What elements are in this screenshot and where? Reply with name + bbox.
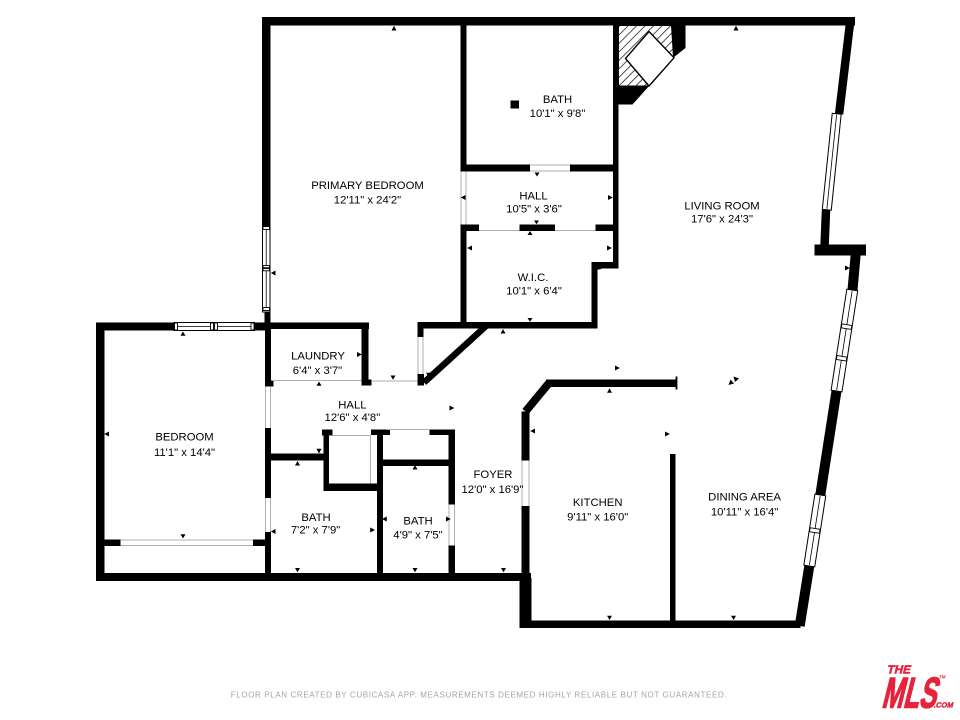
svg-text:MLS: MLS bbox=[879, 668, 946, 717]
svg-text:7'2" x 7'9": 7'2" x 7'9" bbox=[291, 525, 340, 537]
svg-text:9'11" x 16'0": 9'11" x 16'0" bbox=[567, 512, 628, 524]
svg-text:6'4" x 3'7": 6'4" x 3'7" bbox=[293, 365, 342, 377]
svg-text:12'0" x 16'9": 12'0" x 16'9" bbox=[462, 484, 524, 496]
svg-text:10'1" x 6'4": 10'1" x 6'4" bbox=[506, 286, 562, 298]
svg-text:4'9" x 7'5": 4'9" x 7'5" bbox=[393, 530, 442, 542]
svg-text:BEDROOM: BEDROOM bbox=[155, 432, 213, 444]
svg-text:BATH: BATH bbox=[543, 94, 572, 106]
svg-text:12'6" x 4'8": 12'6" x 4'8" bbox=[325, 412, 381, 424]
svg-text:BATH: BATH bbox=[301, 512, 330, 524]
svg-text:10'11" x 16'4": 10'11" x 16'4" bbox=[711, 506, 778, 518]
svg-text:HALL: HALL bbox=[338, 399, 366, 411]
svg-text:12'11" x 24'2": 12'11" x 24'2" bbox=[334, 195, 401, 207]
svg-text:.COM: .COM bbox=[933, 701, 955, 710]
svg-text:BATH: BATH bbox=[403, 516, 432, 528]
svg-text:LIVING ROOM: LIVING ROOM bbox=[684, 201, 759, 213]
svg-text:17'6" x 24'3": 17'6" x 24'3" bbox=[691, 214, 753, 226]
svg-text:W.I.C.: W.I.C. bbox=[518, 272, 549, 284]
svg-text:11'1" x 14'4": 11'1" x 14'4" bbox=[154, 447, 215, 459]
svg-text:FLOOR PLAN CREATED BY CUBICASA: FLOOR PLAN CREATED BY CUBICASA APP. MEAS… bbox=[231, 691, 727, 700]
svg-text:10'1" x 9'8": 10'1" x 9'8" bbox=[530, 108, 586, 120]
svg-text:HALL: HALL bbox=[519, 191, 547, 203]
svg-text:LAUNDRY: LAUNDRY bbox=[291, 351, 345, 363]
svg-text:FOYER: FOYER bbox=[474, 469, 513, 481]
svg-text:KITCHEN: KITCHEN bbox=[573, 497, 623, 509]
svg-text:10'5" x 3'6": 10'5" x 3'6" bbox=[506, 204, 562, 216]
svg-text:DINING AREA: DINING AREA bbox=[708, 491, 781, 503]
svg-text:PRIMARY BEDROOM: PRIMARY BEDROOM bbox=[311, 180, 424, 192]
svg-text:TM: TM bbox=[938, 675, 946, 680]
